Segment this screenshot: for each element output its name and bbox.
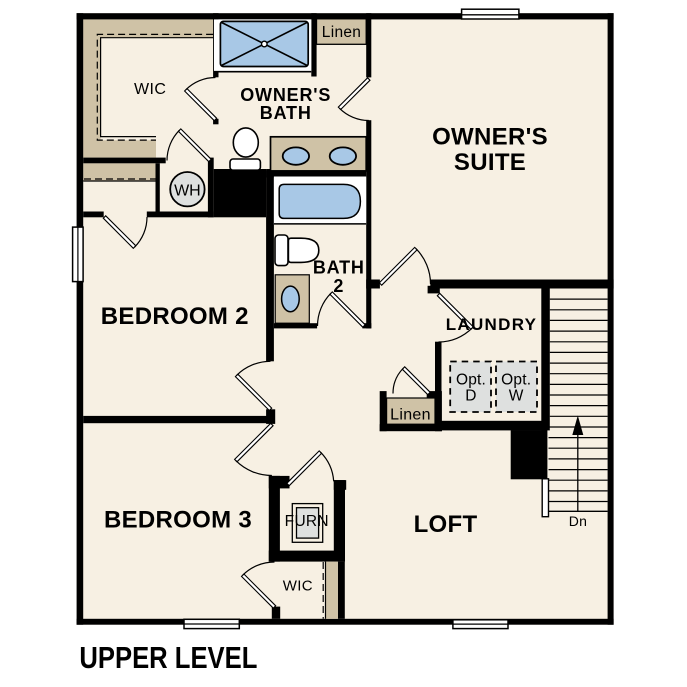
svg-text:Opt.: Opt. xyxy=(456,372,486,389)
svg-text:BATH: BATH xyxy=(313,258,365,278)
svg-text:LOFT: LOFT xyxy=(414,511,478,538)
svg-text:BEDROOM 3: BEDROOM 3 xyxy=(104,507,252,534)
svg-text:Linen: Linen xyxy=(322,24,361,41)
svg-text:FURN: FURN xyxy=(285,513,329,530)
svg-text:BATH: BATH xyxy=(260,103,312,123)
svg-text:UPPER LEVEL: UPPER LEVEL xyxy=(79,640,257,675)
svg-text:SUITE: SUITE xyxy=(454,149,526,176)
svg-text:WIC: WIC xyxy=(134,81,166,98)
svg-text:D: D xyxy=(465,387,476,404)
svg-text:WH: WH xyxy=(174,183,201,200)
svg-text:Dn: Dn xyxy=(569,513,588,529)
svg-text:Linen: Linen xyxy=(390,407,431,424)
svg-text:BEDROOM 2: BEDROOM 2 xyxy=(101,303,249,330)
svg-text:OWNER'S: OWNER'S xyxy=(432,124,548,151)
svg-text:W: W xyxy=(509,387,524,404)
svg-text:LAUNDRY: LAUNDRY xyxy=(446,315,538,334)
svg-text:2: 2 xyxy=(333,276,344,296)
svg-text:OWNER'S: OWNER'S xyxy=(240,85,331,105)
svg-text:WIC: WIC xyxy=(283,578,313,595)
svg-text:Opt.: Opt. xyxy=(501,372,531,389)
